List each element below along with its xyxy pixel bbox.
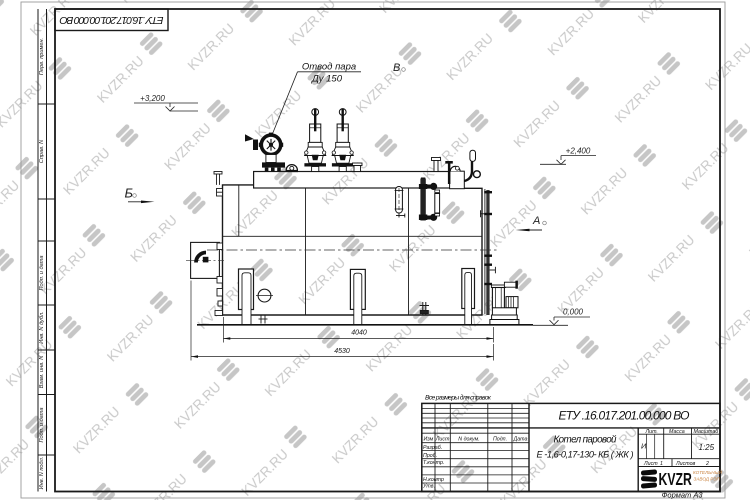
svg-text:Подп. и дата: Подп. и дата <box>39 407 45 442</box>
svg-text:1: 1 <box>660 461 663 467</box>
svg-text:В: В <box>393 62 400 74</box>
svg-text:ЕТУ .16.017.201.00.000 ВО: ЕТУ .16.017.201.00.000 ВО <box>59 14 163 26</box>
svg-text:И: И <box>641 442 647 451</box>
svg-text:Утв.: Утв. <box>423 484 435 490</box>
svg-text:Взам. инв. N: Взам. инв. N <box>39 355 45 389</box>
svg-text:Разраб.: Разраб. <box>423 445 442 451</box>
svg-text:Котел паровой: Котел паровой <box>554 435 618 446</box>
svg-text:Е -1,6-0,17-130- КБ ( ЖК ): Е -1,6-0,17-130- КБ ( ЖК ) <box>537 450 634 460</box>
svg-text:Б: Б <box>125 186 134 201</box>
svg-text:+2,400: +2,400 <box>566 147 591 156</box>
svg-text:1:25: 1:25 <box>699 443 715 452</box>
svg-text:Все размеры для справок: Все размеры для справок <box>425 394 492 402</box>
svg-text:Т.контр.: Т.контр. <box>423 460 444 466</box>
svg-text:ЕТУ .16.017.201.00.000 ВО: ЕТУ .16.017.201.00.000 ВО <box>559 409 690 423</box>
svg-text:Формат А3: Формат А3 <box>661 490 703 499</box>
svg-text:Масштаб: Масштаб <box>694 429 720 435</box>
svg-text:Лит.: Лит. <box>645 429 658 435</box>
svg-text:Инв. N дубл.: Инв. N дубл. <box>39 311 45 343</box>
svg-text:Инв. N подл.: Инв. N подл. <box>39 457 45 490</box>
svg-text:Листов: Листов <box>675 461 696 467</box>
svg-text:+3,200: +3,200 <box>140 94 165 103</box>
svg-text:Перв. примен.: Перв. примен. <box>39 38 45 75</box>
svg-text:Дата: Дата <box>513 436 528 442</box>
svg-text:ЗАВОД РЭП: ЗАВОД РЭП <box>694 476 721 481</box>
svg-text:Н.контр: Н.контр <box>423 477 444 483</box>
svg-text:N докум.: N докум. <box>458 436 479 442</box>
svg-text:Лист: Лист <box>643 461 658 467</box>
svg-text:Лист: Лист <box>435 436 450 442</box>
svg-text:А: А <box>532 215 540 227</box>
svg-text:Справ. N: Справ. N <box>39 139 45 163</box>
svg-text:KVZR: KVZR <box>659 470 692 490</box>
svg-text:2: 2 <box>705 461 709 467</box>
svg-text:Масса: Масса <box>669 429 685 435</box>
svg-text:Подп.: Подп. <box>493 436 507 442</box>
svg-text:КОТЕЛЬНЫЙ: КОТЕЛЬНЫЙ <box>693 468 723 475</box>
svg-text:Подп. и дата: Подп. и дата <box>39 255 45 290</box>
svg-text:4040: 4040 <box>351 330 367 337</box>
svg-text:Ду 150: Ду 150 <box>311 74 343 85</box>
svg-text:Изм: Изм <box>423 436 433 442</box>
svg-text:Отвод пара: Отвод пара <box>302 62 356 73</box>
svg-text:4530: 4530 <box>334 348 350 355</box>
svg-text:Проб.: Проб. <box>423 453 437 459</box>
svg-text:0,000: 0,000 <box>563 308 584 317</box>
